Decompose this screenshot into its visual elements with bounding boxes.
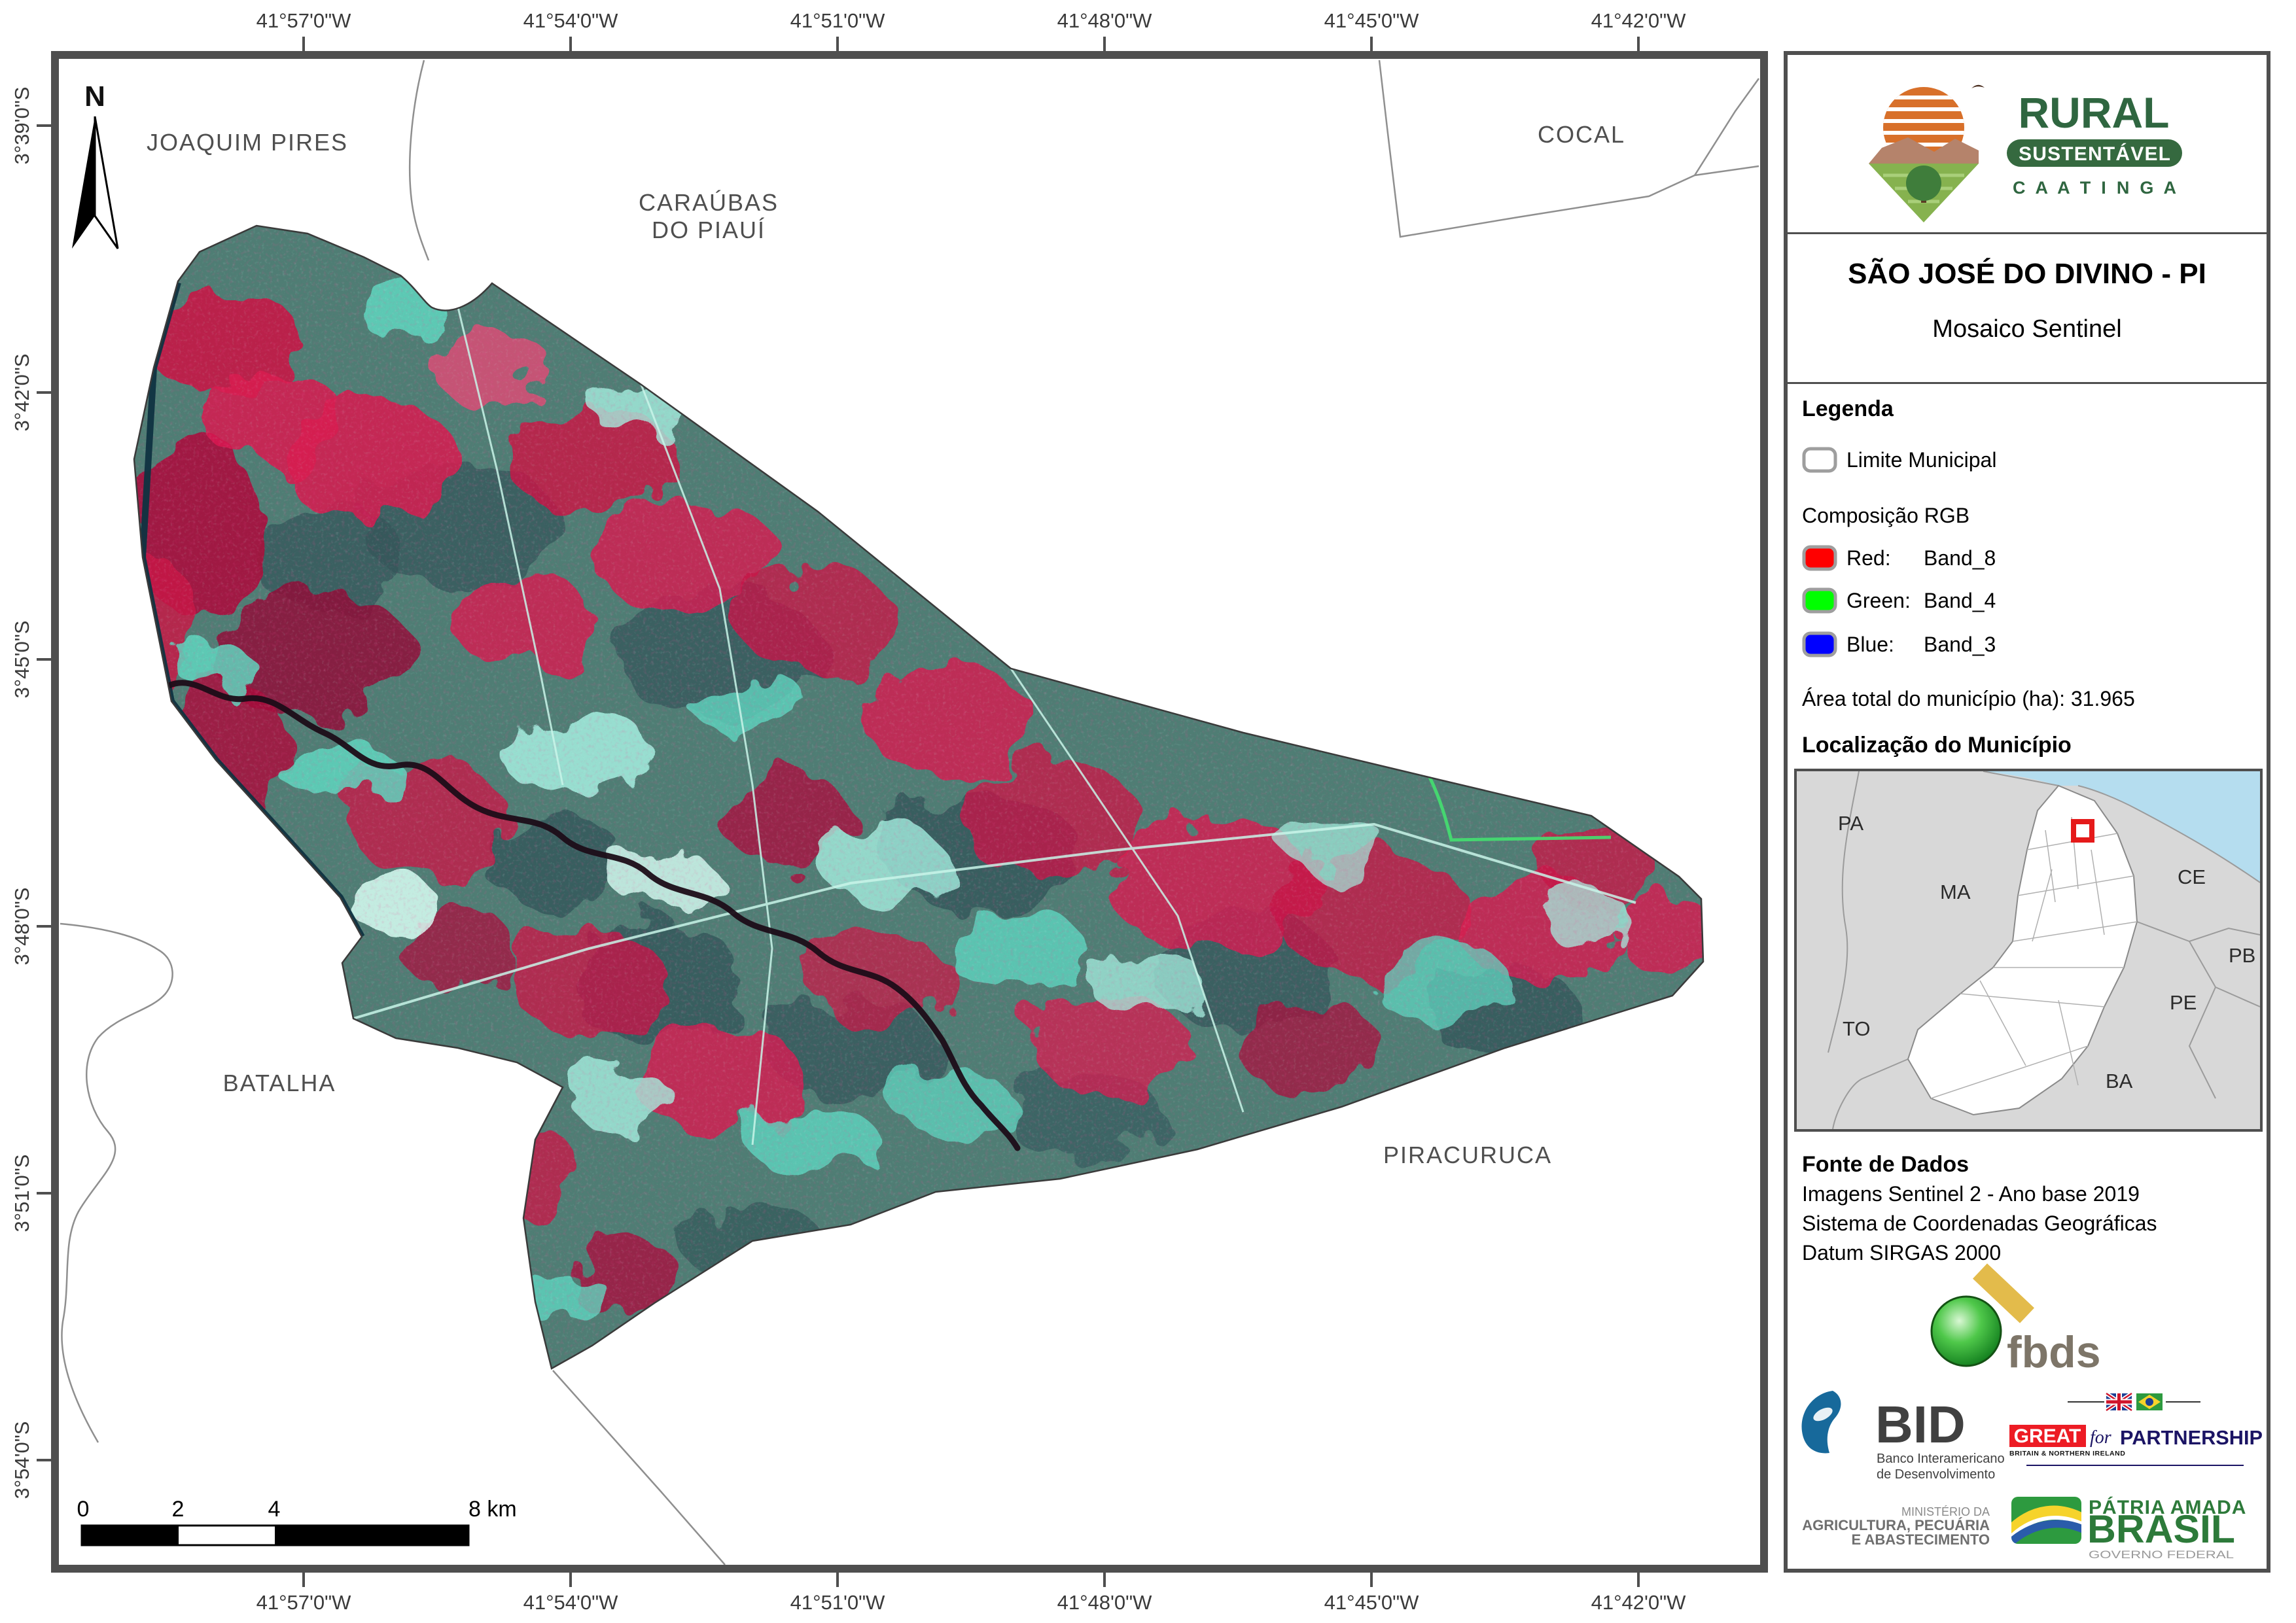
map-subtitle: Mosaico Sentinel xyxy=(1788,315,2267,343)
lon-label: 41°45'0"W xyxy=(1293,9,1450,33)
place-label-caraubas-2: DO PIAUÍ xyxy=(652,217,766,243)
state-label: CE xyxy=(2178,865,2206,888)
lat-label: 3°51'0"S xyxy=(10,1115,34,1272)
tick-lon xyxy=(569,1573,572,1587)
limite-swatch xyxy=(1802,447,1837,473)
fbds-wordmark: fbds xyxy=(2007,1327,2101,1377)
red-swatch xyxy=(1802,545,1837,571)
rgb-heading: Composição RGB xyxy=(1802,504,1969,528)
ministry-line-3: E ABASTECIMENTO xyxy=(1852,1531,1990,1548)
tick-lat xyxy=(37,391,51,394)
logo-footer: C A A T I N G A xyxy=(2013,178,2176,198)
legend-item-value: Band_4 xyxy=(1924,589,1996,613)
brasil-flag-logo xyxy=(2007,1497,2089,1545)
blue-swatch xyxy=(1802,631,1837,657)
tree-icon xyxy=(1906,166,1941,201)
map-title: SÃO JOSÉ DO DIVINO - PI xyxy=(1788,258,2267,290)
tick-lat xyxy=(37,1459,51,1461)
bird-icon xyxy=(1971,85,1985,88)
tick-lon xyxy=(836,37,839,51)
ministry-line-1: MINISTÉRIO DA xyxy=(1901,1505,1990,1518)
bid-logo: BID Banco Interamericano de Desenvolvime… xyxy=(1797,1387,2006,1485)
scale-label-2: 2 xyxy=(172,1497,185,1522)
tick-lat xyxy=(37,658,51,661)
data-source-heading: Fonte de Dados xyxy=(1802,1150,2260,1179)
bid-icon xyxy=(1802,1391,1841,1453)
data-source-block: Fonte de Dados Imagens Sentinel 2 - Ano … xyxy=(1802,1150,2260,1268)
data-source-line: Sistema de Coordenadas Geográficas xyxy=(1802,1209,2260,1238)
scale-label-4: 4 xyxy=(268,1497,281,1522)
location-heading: Localização do Município xyxy=(1802,733,2072,758)
great-sub: BRITAIN & NORTHERN IRELAND xyxy=(2009,1450,2125,1457)
place-label-batalha: BATALHA xyxy=(223,1070,336,1096)
legend-item-limite: Limite Municipal xyxy=(1802,445,1996,474)
tick-lon xyxy=(302,37,305,51)
lon-label: 41°54'0"W xyxy=(492,9,649,33)
data-source-line: Imagens Sentinel 2 - Ano base 2019 xyxy=(1802,1179,2260,1209)
brasil-wordmark: BRASIL xyxy=(2087,1507,2235,1551)
state-label: PA xyxy=(1838,812,1863,835)
tick-lon xyxy=(1370,37,1373,51)
state-label: TO xyxy=(1843,1017,1871,1040)
sidebar-divider xyxy=(1788,382,2267,384)
legend-item-red: Red: Band_8 xyxy=(1802,544,1996,572)
lat-label: 3°42'0"S xyxy=(10,314,34,471)
sidebar: RURAL SUSTENTÁVEL C A A T I N G A SÃO JO… xyxy=(1784,51,2270,1573)
scale-label-0: 0 xyxy=(77,1497,90,1522)
tick-lon xyxy=(302,1573,305,1587)
map-layout-page: 41°57'0"W 41°54'0"W 41°51'0"W 41°48'0"W … xyxy=(0,0,2296,1623)
logo-title: RURAL xyxy=(2019,88,2170,137)
tick-lon xyxy=(1370,1573,1373,1587)
sidebar-divider xyxy=(1788,232,2267,234)
legend-item-value: Band_8 xyxy=(1924,546,1996,570)
bid-name-1: Banco Interamericano xyxy=(1877,1452,2005,1466)
lon-label: 41°45'0"W xyxy=(1293,1591,1450,1614)
lon-label: 41°51'0"W xyxy=(759,1591,916,1614)
lon-label: 41°48'0"W xyxy=(1026,9,1183,33)
government-logos: MINISTÉRIO DA AGRICULTURA, PECUÁRIA E AB… xyxy=(1788,1485,2267,1571)
legend-heading: Legenda xyxy=(1802,396,1894,422)
state-label: BA xyxy=(2106,1070,2133,1092)
scale-label-8km: 8 km xyxy=(468,1497,517,1522)
area-total: Área total do município (ha): 31.965 xyxy=(1802,687,2135,711)
lon-label: 41°54'0"W xyxy=(492,1591,649,1614)
for-word: for xyxy=(2090,1427,2111,1448)
legend-item-label: Limite Municipal xyxy=(1846,448,1996,472)
lat-label: 3°48'0"S xyxy=(10,848,34,1005)
governo-federal: GOVERNO FEDERAL xyxy=(2089,1548,2234,1561)
legend-item-value: Band_3 xyxy=(1924,633,1996,657)
partnership-wordmark: PARTNERSHIP xyxy=(2120,1426,2263,1449)
north-arrow: N xyxy=(72,80,118,249)
legend-item-label: Blue: xyxy=(1846,633,1924,657)
ministry-block: MINISTÉRIO DA AGRICULTURA, PECUÁRIA E AB… xyxy=(1802,1505,1990,1548)
scale-bar: 0 2 4 8 km xyxy=(77,1497,517,1545)
great-wordmark: GREAT xyxy=(2014,1425,2081,1447)
tick-lon xyxy=(836,1573,839,1587)
bid-name-2: de Desenvolvimento xyxy=(1877,1467,1995,1482)
north-arrow-label: N xyxy=(84,80,105,113)
lon-label: 41°42'0"W xyxy=(1560,9,1717,33)
lon-label: 41°48'0"W xyxy=(1026,1591,1183,1614)
tick-lon xyxy=(1103,37,1106,51)
fbds-logo: fbds xyxy=(1899,1262,2134,1386)
rural-sustentavel-caatinga-logo: RURAL SUSTENTÁVEL C A A T I N G A xyxy=(1843,65,2209,229)
bid-wordmark: BID xyxy=(1875,1395,1966,1454)
municipality-marker xyxy=(2074,822,2092,840)
tick-lat xyxy=(37,925,51,928)
map-canvas: JOAQUIM PIRES CARAÚBAS DO PIAUÍ COCAL BA… xyxy=(59,59,1760,1565)
satellite-imagery xyxy=(105,209,1721,1387)
fbds-ball-icon xyxy=(1932,1297,2001,1366)
place-label-cocal: COCAL xyxy=(1538,121,1625,148)
state-label: PE xyxy=(2170,991,2197,1014)
tick-lat xyxy=(37,1192,51,1195)
place-label-joaquim-pires: JOAQUIM PIRES xyxy=(147,129,348,156)
state-label: MA xyxy=(1940,881,1971,903)
brazil-flag-icon xyxy=(2136,1393,2163,1410)
tick-lat xyxy=(37,124,51,127)
lat-label: 3°45'0"S xyxy=(10,581,34,738)
place-label-caraubas-1: CARAÚBAS xyxy=(639,189,779,216)
place-label-piracuruca: PIRACURUCA xyxy=(1383,1142,1552,1168)
tick-lon xyxy=(1103,1573,1106,1587)
lon-label: 41°57'0"W xyxy=(225,9,382,33)
location-inset-map: PA MA CE PB PE TO BA xyxy=(1794,769,2263,1132)
uk-flag-icon xyxy=(2106,1393,2132,1410)
lon-label: 41°42'0"W xyxy=(1560,1591,1717,1614)
legend-item-green: Green: Band_4 xyxy=(1802,586,1996,615)
lat-label: 3°54'0"S xyxy=(10,1382,34,1539)
logo-subtitle: SUSTENTÁVEL xyxy=(2019,143,2170,165)
state-label: PB xyxy=(2229,944,2255,967)
legend-item-label: Red: xyxy=(1846,546,1924,570)
green-swatch xyxy=(1802,587,1837,614)
legend-item-label: Green: xyxy=(1846,589,1924,613)
tick-lon xyxy=(1637,37,1640,51)
lon-label: 41°51'0"W xyxy=(759,9,916,33)
tick-lon xyxy=(569,37,572,51)
lat-label: 3°39'0"S xyxy=(10,47,34,204)
tick-lon xyxy=(1637,1573,1640,1587)
legend-item-blue: Blue: Band_3 xyxy=(1802,630,1996,659)
lon-label: 41°57'0"W xyxy=(225,1591,382,1614)
